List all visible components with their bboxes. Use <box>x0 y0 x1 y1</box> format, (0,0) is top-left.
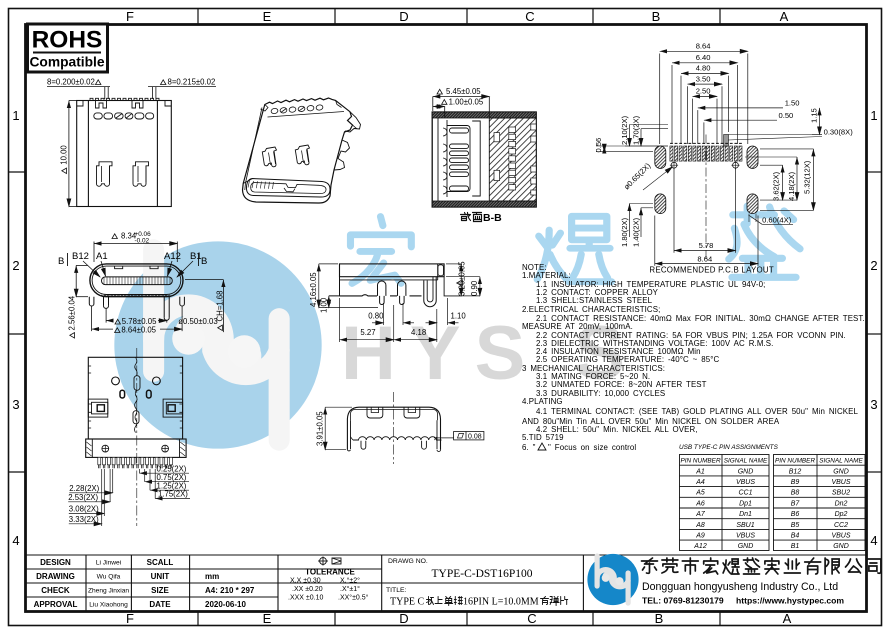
svg-text:GND: GND <box>833 543 849 550</box>
svg-text:16PIN L=10.0MM: 16PIN L=10.0MM <box>463 597 539 608</box>
svg-text:DATE: DATE <box>149 600 171 609</box>
svg-text:RECOMMENDED P.C.B LAYOUT: RECOMMENDED P.C.B LAYOUT <box>649 265 774 274</box>
svg-text:A: A <box>780 9 789 24</box>
svg-text:1: 1 <box>870 108 877 123</box>
svg-text:A7: A7 <box>695 511 706 518</box>
svg-text:CHECK: CHECK <box>41 586 70 595</box>
svg-text:.XX ±0.20: .XX ±0.20 <box>292 586 323 593</box>
svg-text:VBUS: VBUS <box>736 533 755 540</box>
svg-text:A5: A5 <box>695 490 705 497</box>
svg-text:1.80(2X): 1.80(2X) <box>620 217 629 247</box>
svg-text:A8: A8 <box>695 522 705 529</box>
svg-text:B: B <box>652 9 661 24</box>
svg-text:B1: B1 <box>190 251 202 262</box>
svg-text:0.80: 0.80 <box>368 312 384 321</box>
svg-text:6.40: 6.40 <box>696 53 711 62</box>
svg-text:B5: B5 <box>791 522 800 529</box>
svg-text:TYPE-C-DST16P100: TYPE-C-DST16P100 <box>432 568 533 580</box>
svg-text:F: F <box>126 611 134 626</box>
svg-text:A1: A1 <box>96 251 108 262</box>
svg-text:B: B <box>655 611 664 626</box>
svg-text:4.1 TERMINAL CONTACT: (SEE TAB: 4.1 TERMINAL CONTACT: (SEE TAB) GOLD PLA… <box>536 407 858 416</box>
svg-text:B6: B6 <box>791 511 800 518</box>
svg-text:SCALL: SCALL <box>147 558 174 567</box>
svg-text:6. ": 6. " <box>522 443 536 452</box>
svg-text:10.00: 10.00 <box>60 145 69 165</box>
svg-text:1.00±0.05: 1.00±0.05 <box>449 97 484 106</box>
svg-text:ROHS: ROHS <box>32 27 103 54</box>
svg-text:Dp2: Dp2 <box>835 511 848 518</box>
svg-text:B9: B9 <box>791 479 800 486</box>
svg-text:0.30(8X): 0.30(8X) <box>824 127 854 136</box>
svg-text:2.10(2X): 2.10(2X) <box>620 115 629 145</box>
svg-text:1.50: 1.50 <box>785 99 800 108</box>
svg-text:3: 3 <box>12 397 19 412</box>
svg-text:E: E <box>263 9 272 24</box>
svg-text:mm: mm <box>205 572 219 581</box>
svg-text:Compatible: Compatible <box>29 55 104 70</box>
svg-text:A: A <box>783 611 792 626</box>
svg-text:2.56±0.04: 2.56±0.04 <box>68 295 77 330</box>
svg-text:B8: B8 <box>791 490 800 497</box>
svg-text:B12: B12 <box>789 468 802 475</box>
svg-text:SIZE: SIZE <box>151 586 169 595</box>
svg-text:2.53(2X): 2.53(2X) <box>68 493 98 502</box>
svg-text:VBUS: VBUS <box>831 533 850 540</box>
svg-text:2: 2 <box>12 258 19 273</box>
svg-text:2.5 OPERATING TEMPERATURE: -40: 2.5 OPERATING TEMPERATURE: -40°C ~ 85°C <box>536 355 720 364</box>
svg-text:SBU1: SBU1 <box>736 522 754 529</box>
svg-text:8=0.200±0.02: 8=0.200±0.02 <box>47 78 95 87</box>
svg-text:SIGNAL NAME: SIGNAL NAME <box>724 458 768 465</box>
svg-text:.X°±1°: .X°±1° <box>340 585 360 593</box>
svg-text:2020-06-10: 2020-06-10 <box>205 600 246 609</box>
svg-text:1.MATERIAL:: 1.MATERIAL: <box>522 271 571 280</box>
svg-text:4: 4 <box>870 533 877 548</box>
svg-text:Zheng Jinxian: Zheng Jinxian <box>88 588 129 595</box>
svg-text:3.91±0.05: 3.91±0.05 <box>316 411 325 446</box>
svg-text:GND: GND <box>833 468 849 475</box>
svg-text:3: 3 <box>870 397 877 412</box>
svg-text:MEASURE AT 20mV, 100mA.: MEASURE AT 20mV, 100mA. <box>522 322 633 331</box>
svg-text:D: D <box>399 611 408 626</box>
svg-text:1: 1 <box>12 108 19 123</box>
svg-text:2.28(2X): 2.28(2X) <box>69 484 99 493</box>
svg-text:A12: A12 <box>164 251 181 262</box>
svg-text:ø0.50±0.03: ø0.50±0.03 <box>178 317 217 326</box>
svg-text:.XXX ±0.10: .XXX ±0.10 <box>288 595 323 602</box>
svg-text:B4: B4 <box>791 533 800 540</box>
svg-text:1.70(2X): 1.70(2X) <box>631 115 640 145</box>
svg-text:3.50: 3.50 <box>696 74 711 83</box>
svg-text:Li Jinwei: Li Jinwei <box>96 560 122 567</box>
svg-text:1.15: 1.15 <box>809 108 818 123</box>
svg-text:3.62(2X): 3.62(2X) <box>772 171 781 201</box>
svg-text:1.10: 1.10 <box>451 312 467 321</box>
svg-text:Wu Qifa: Wu Qifa <box>97 574 121 581</box>
svg-text:GND: GND <box>738 543 754 550</box>
svg-text:B12: B12 <box>72 251 89 262</box>
svg-text:" Focus on size control: " Focus on size control <box>548 443 636 452</box>
svg-text:.XX°±0.5°: .XX°±0.5° <box>338 594 369 602</box>
svg-text:2: 2 <box>870 258 877 273</box>
svg-text:GND: GND <box>738 468 754 475</box>
svg-text:8.64: 8.64 <box>696 42 711 51</box>
svg-text:A12: A12 <box>693 543 707 550</box>
svg-text:Dn2: Dn2 <box>835 500 848 507</box>
svg-text:1.3 SHELL:STAINLESS STEEL: 1.3 SHELL:STAINLESS STEEL <box>536 296 653 305</box>
svg-text:8.64±0.05: 8.64±0.05 <box>121 326 156 335</box>
svg-text:4.16±0.05: 4.16±0.05 <box>309 272 318 307</box>
svg-text:F: F <box>126 9 134 24</box>
svg-text:Dongguan hongyusheng Industry: Dongguan hongyusheng Industry Co., Ltd <box>642 581 838 593</box>
svg-text:PIN NUMBER: PIN NUMBER <box>680 458 721 465</box>
svg-text:SBU2: SBU2 <box>832 490 850 497</box>
svg-text:USB TYPE-C PIN ASSIGNMENTS: USB TYPE-C PIN ASSIGNMENTS <box>679 444 779 451</box>
svg-text:B: B <box>201 256 207 267</box>
svg-text:A1: A1 <box>695 468 705 475</box>
svg-text:E: E <box>263 611 272 626</box>
svg-text:0.50: 0.50 <box>779 111 794 120</box>
svg-text:X.°±2°: X.°±2° <box>340 577 360 585</box>
svg-text:1.40(2X): 1.40(2X) <box>631 217 640 247</box>
svg-text:D: D <box>399 9 408 24</box>
svg-text:B7: B7 <box>791 500 801 507</box>
svg-text:B1: B1 <box>791 543 800 550</box>
svg-text:TOLERANCE: TOLERANCE <box>305 568 355 577</box>
svg-text:TEL: 0769-81230179: TEL: 0769-81230179 <box>642 596 724 606</box>
svg-text:3.2 UNMATED FORCE: 8~20N AFTER: 3.2 UNMATED FORCE: 8~20N AFTER TEST <box>536 380 707 389</box>
svg-text:A9: A9 <box>695 533 705 540</box>
svg-text:Dn1: Dn1 <box>739 511 752 518</box>
svg-text:5.78: 5.78 <box>699 241 714 250</box>
svg-text:4.18: 4.18 <box>411 328 426 337</box>
svg-text:UNIT: UNIT <box>151 572 170 581</box>
svg-text:CC1: CC1 <box>738 490 752 497</box>
svg-text:A4: 210 * 297: A4: 210 * 297 <box>205 586 255 595</box>
svg-text:DESIGN: DESIGN <box>40 558 71 567</box>
svg-text:8.64: 8.64 <box>697 254 712 263</box>
svg-text:1.00: 1.00 <box>320 297 329 313</box>
svg-text:Liu Xiaohong: Liu Xiaohong <box>89 602 128 609</box>
svg-text:C: C <box>527 611 536 626</box>
svg-text:B: B <box>58 256 64 267</box>
svg-text:3.33(2X): 3.33(2X) <box>69 515 99 524</box>
svg-text:3.26±0.05: 3.26±0.05 <box>458 261 467 296</box>
svg-text:2.ELECTRICAL CHARACTERISTICS;: 2.ELECTRICAL CHARACTERISTICS; <box>522 305 660 314</box>
svg-text:1.75(2X): 1.75(2X) <box>158 490 188 499</box>
svg-text:5.45±0.05: 5.45±0.05 <box>446 87 481 96</box>
svg-text:A6: A6 <box>695 500 705 507</box>
svg-text:0.56: 0.56 <box>594 138 603 153</box>
svg-text:Dp1: Dp1 <box>739 500 752 507</box>
svg-text:2.50: 2.50 <box>696 87 711 96</box>
svg-text:0.60(4X): 0.60(4X) <box>762 215 792 224</box>
svg-text:8=0.215±0.02: 8=0.215±0.02 <box>168 78 216 87</box>
svg-text:APPROVAL: APPROVAL <box>34 600 78 609</box>
svg-text:VBUS: VBUS <box>736 479 755 486</box>
svg-text:5.32(12X): 5.32(12X) <box>802 160 811 194</box>
svg-text:DRAWG NO.: DRAWG NO. <box>388 558 428 565</box>
svg-text:4.PLATING: 4.PLATING <box>522 397 563 406</box>
svg-text:VBUS: VBUS <box>831 479 850 486</box>
svg-text:3.08(2X): 3.08(2X) <box>69 505 99 514</box>
svg-text:4.80: 4.80 <box>696 64 711 73</box>
svg-text:C: C <box>525 9 534 24</box>
svg-text:CC2: CC2 <box>834 522 848 529</box>
svg-text:5.27: 5.27 <box>360 328 375 337</box>
svg-text:TITLE:: TITLE: <box>386 587 407 594</box>
svg-text:4: 4 <box>12 533 19 548</box>
svg-text:DRAWING: DRAWING <box>36 572 75 581</box>
svg-text:SIGNAL NAME: SIGNAL NAME <box>819 458 863 465</box>
svg-text:X.X ±0.30: X.X ±0.30 <box>290 578 321 585</box>
svg-text:B-B: B-B <box>483 212 502 224</box>
svg-text:0.08: 0.08 <box>468 434 482 441</box>
svg-text:A4: A4 <box>695 479 705 486</box>
svg-text:4.18(2X): 4.18(2X) <box>787 171 796 201</box>
svg-text:TYPE C: TYPE C <box>390 597 425 608</box>
svg-text:5.TID 5719: 5.TID 5719 <box>522 433 564 442</box>
svg-text:https://www.hystypec.com: https://www.hystypec.com <box>736 596 844 606</box>
svg-text:0.90: 0.90 <box>470 280 479 296</box>
svg-text:PIN NUMBER: PIN NUMBER <box>775 458 816 465</box>
